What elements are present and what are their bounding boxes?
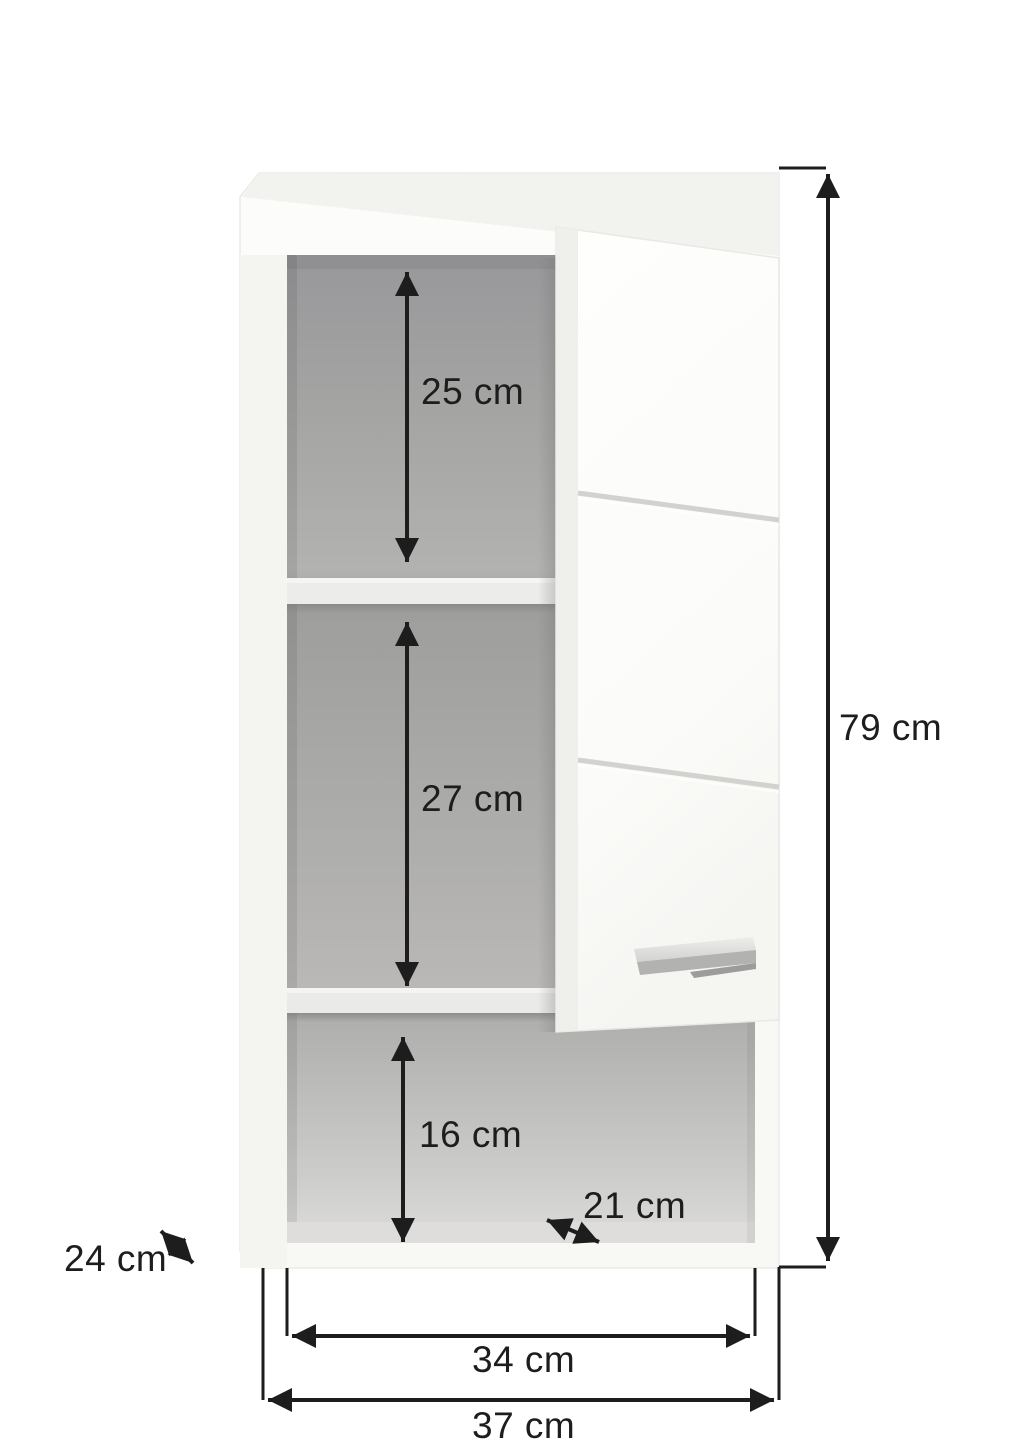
label-bottom-shelf-depth: 21 cm [583,1185,686,1226]
label-middle-compartment-height: 27 cm [421,778,524,819]
dim-total-height [779,168,828,1267]
cabinet-left-side [240,255,287,1268]
label-inner-width: 34 cm [472,1339,575,1380]
label-total-height: 79 cm [839,707,942,748]
shelf-lower [287,988,556,1022]
label-outer-width: 37 cm [472,1405,575,1443]
dim-extension-lines [263,1267,779,1400]
door-edge [556,227,578,1032]
label-cabinet-depth: 24 cm [64,1238,167,1279]
shelf-upper [287,578,556,613]
door-cast-shadow [538,258,556,1032]
cabinet-door [556,227,779,1032]
label-top-compartment-height: 25 cm [421,371,524,412]
cabinet [240,173,779,1268]
cabinet-dimension-diagram: 25 cm 27 cm 16 cm 21 cm 24 cm 79 cm 34 c… [0,0,1024,1443]
dimension-diagram-page: 25 cm 27 cm 16 cm 21 cm 24 cm 79 cm 34 c… [0,0,1024,1443]
door-face [556,227,779,1032]
label-bottom-compartment-height: 16 cm [419,1114,522,1155]
